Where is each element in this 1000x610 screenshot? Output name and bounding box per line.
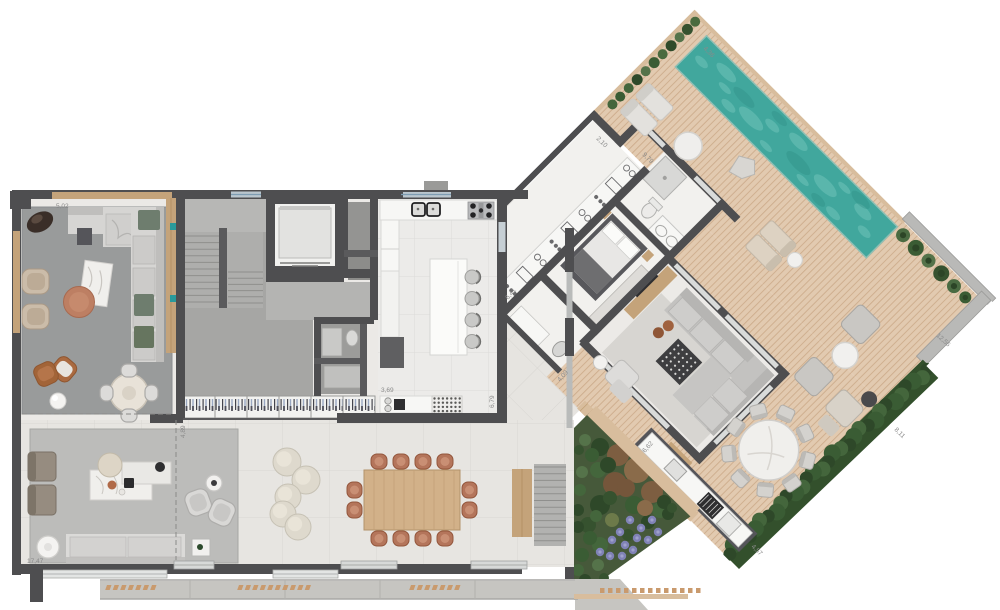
- svg-text:5,02: 5,02: [56, 203, 69, 210]
- svg-text:17,47: 17,47: [27, 558, 44, 565]
- svg-text:6,79: 6,79: [489, 395, 496, 408]
- svg-text:4,89: 4,89: [180, 425, 187, 438]
- svg-text:3,69: 3,69: [381, 387, 394, 394]
